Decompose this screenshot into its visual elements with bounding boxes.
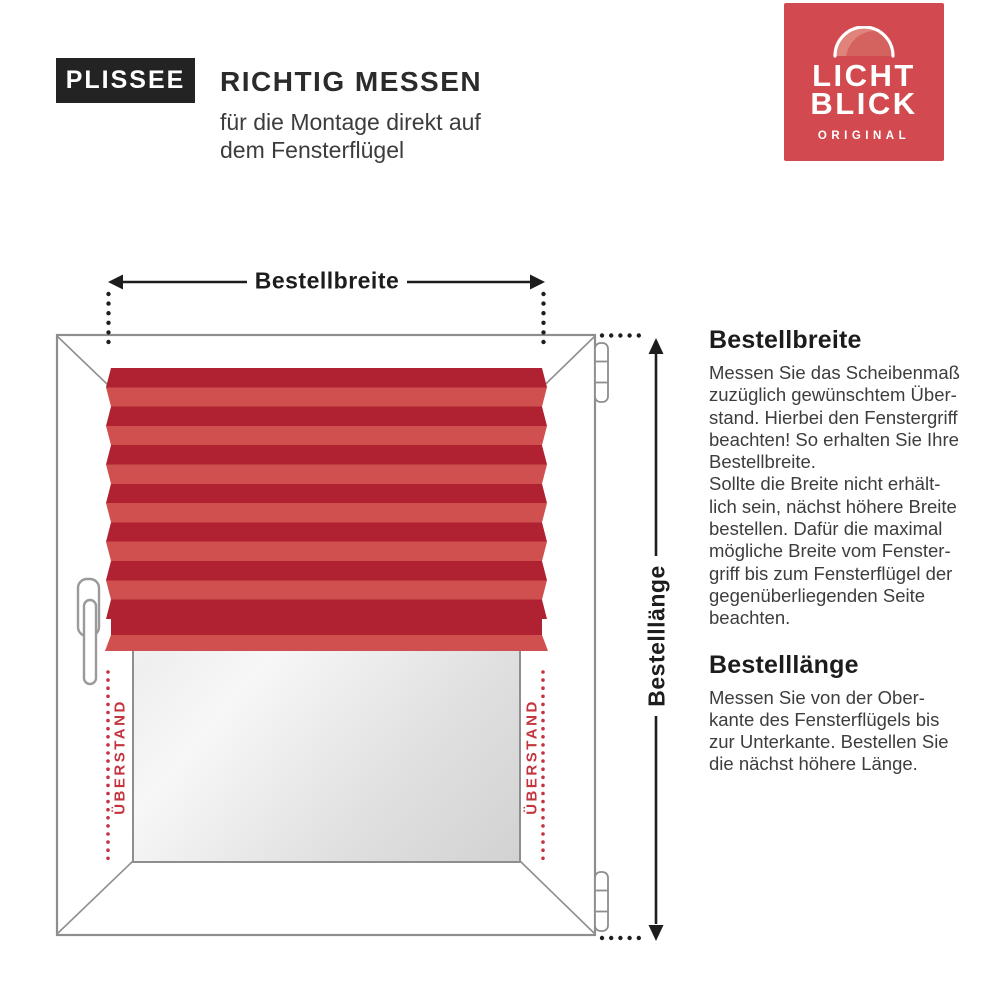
blind-bottom-rail <box>105 635 548 651</box>
section-length-body: Messen Sie von der Ober- kante des Fenst… <box>709 687 989 776</box>
overhang-label-right: ÜBERSTAND <box>524 699 541 815</box>
length-arrow-label: Bestelllänge <box>644 565 671 707</box>
pleated-blind <box>106 368 547 619</box>
hinge-bottom <box>595 872 608 931</box>
width-arrow-label: Bestellbreite <box>255 268 400 295</box>
section-width-heading: Bestellbreite <box>709 326 989 354</box>
hinge-top <box>595 343 608 402</box>
page: PLISSEE RICHTIG MESSEN für die Montage d… <box>0 0 999 999</box>
overhang-label-left: ÜBERSTAND <box>112 699 129 815</box>
section-length-heading: Bestelllänge <box>709 651 989 679</box>
section-width-body: Messen Sie das Scheibenmaß zuzüglich gew… <box>709 362 989 630</box>
blind-rail-shadow <box>111 619 542 635</box>
instructions-column: Bestellbreite Messen Sie das Scheibenmaß… <box>709 326 989 797</box>
